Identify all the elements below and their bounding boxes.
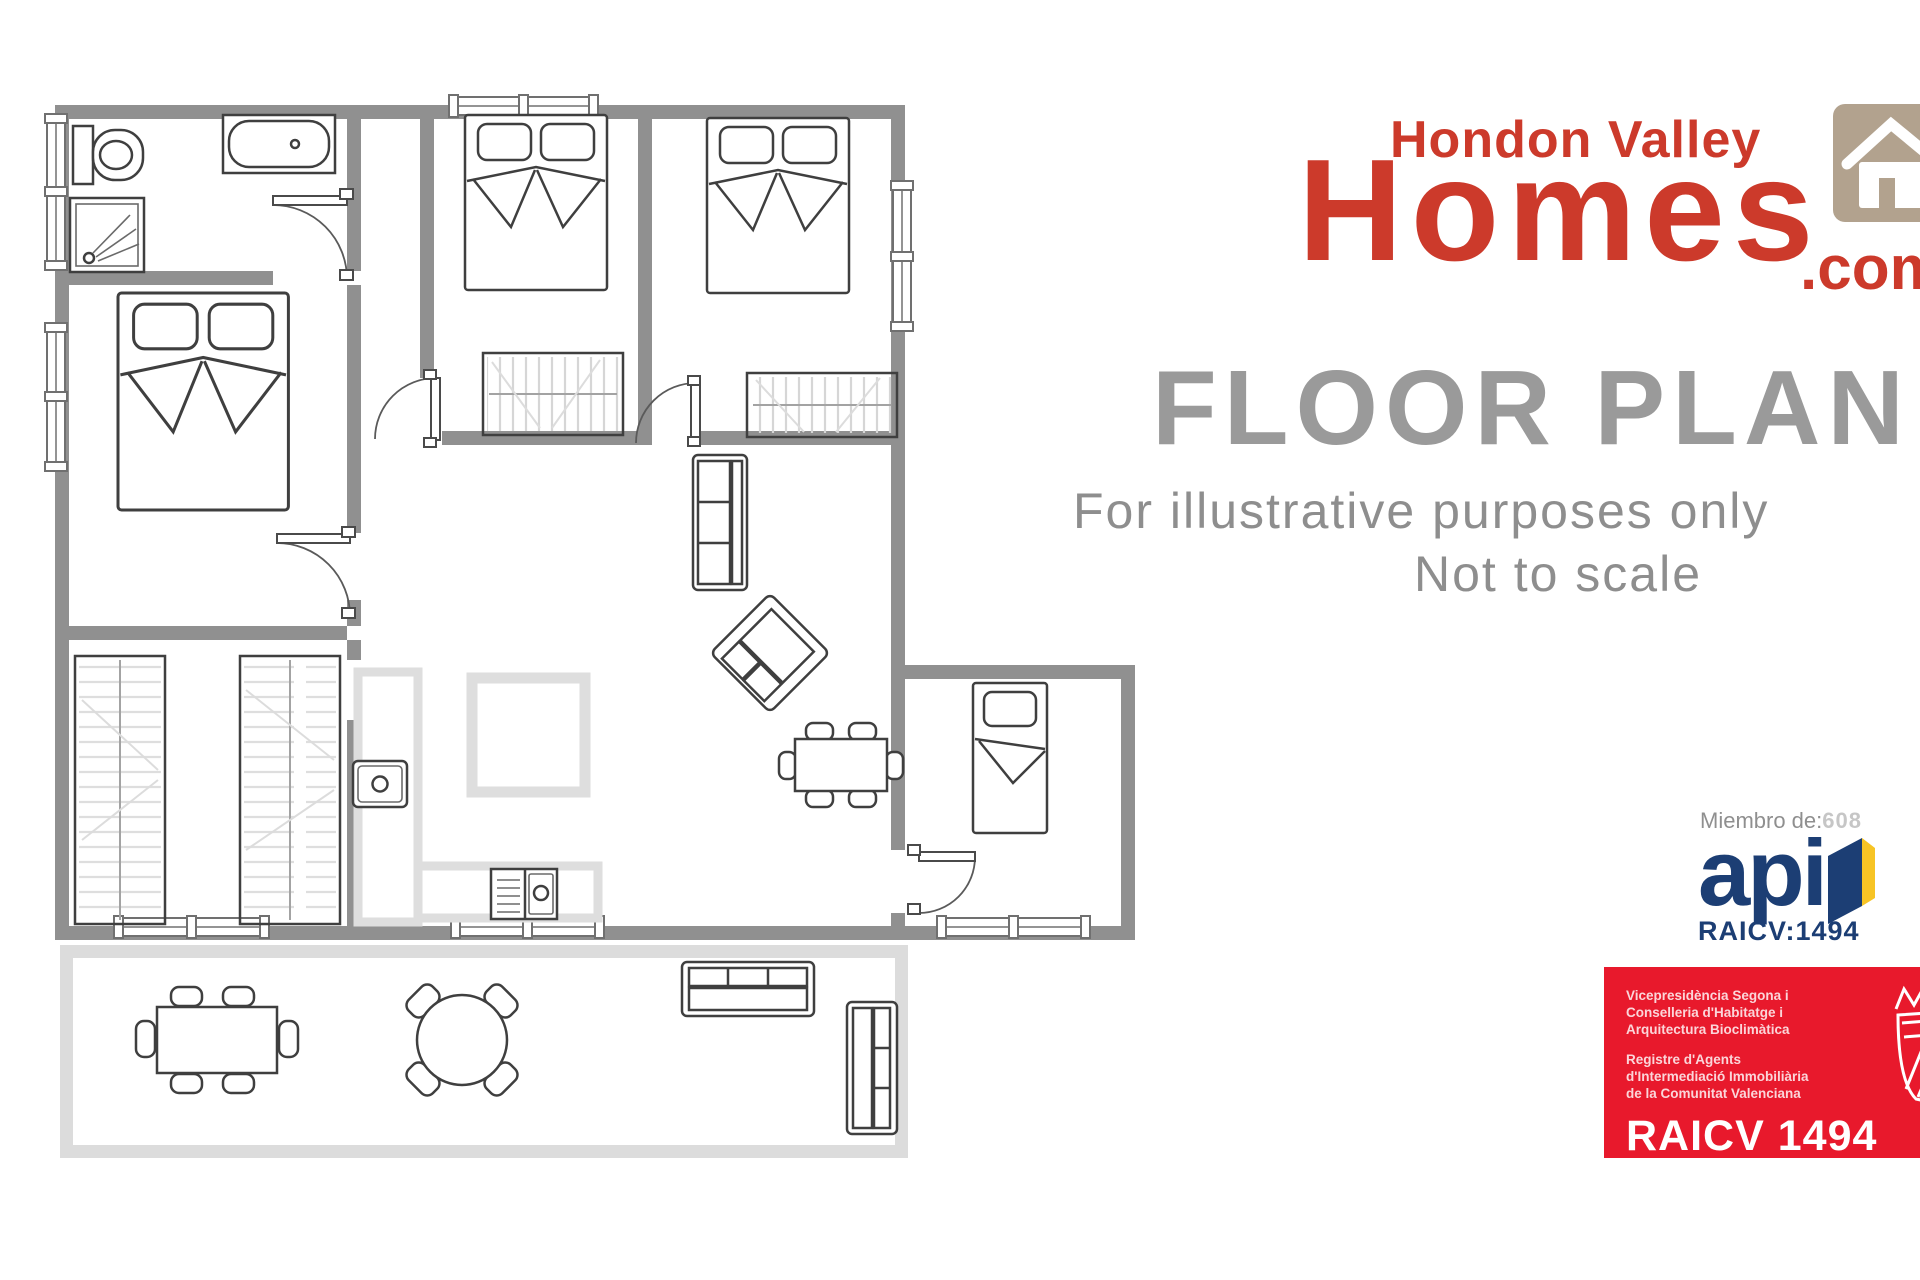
wardrobe-icon <box>240 656 340 924</box>
raicv-registry-badge: Vicepresidència Segona i Conselleria d'H… <box>1604 967 1920 1158</box>
double-bed-icon <box>707 118 849 293</box>
badge-text-line: Vicepresidència Segona i <box>1626 987 1920 1004</box>
floor-plan-flyer: { "branding": { "logo_line1": "Hondon Va… <box>0 0 1920 1280</box>
double-bed-icon <box>465 115 607 290</box>
sofa-icon <box>693 455 747 590</box>
kitchen-island <box>472 678 585 792</box>
sofa-icon <box>682 962 814 1016</box>
api-logo: api <box>1698 826 1825 920</box>
miembro-number: 608 <box>1822 808 1862 833</box>
badge-text-line: de la Comunitat Valenciana <box>1626 1085 1920 1102</box>
badge-text-line: Conselleria d'Habitatge i <box>1626 1004 1920 1021</box>
cooktop-icon <box>491 869 557 919</box>
badge-text-line: d'Intermediació Immobiliària <box>1626 1068 1920 1085</box>
badge-text-line: Registre d'Agents <box>1626 1051 1920 1068</box>
kitchen-sink-icon <box>353 761 407 807</box>
tagline-illustrative: For illustrative purposes only <box>1073 482 1769 540</box>
generalitat-coat-of-arms-icon <box>1888 981 1920 1136</box>
single-bed-icon <box>973 683 1047 833</box>
terrace-table-icon <box>136 987 298 1093</box>
shower-icon <box>70 198 144 272</box>
floor-plan-title: FLOOR PLAN <box>1152 348 1911 469</box>
house-icon <box>1833 104 1920 222</box>
logo-text-domain-suffix: .com <box>1800 233 1920 304</box>
dining-table-icon <box>779 723 903 807</box>
bathtub-icon <box>223 115 335 173</box>
toilet-icon <box>73 126 143 184</box>
round-table-icon <box>403 981 521 1099</box>
armchair-icon <box>711 594 830 713</box>
raicv-number-line: RAICV:1494 <box>1698 916 1860 947</box>
wardrobe-icon <box>75 656 165 924</box>
tagline-not-to-scale: Not to scale <box>1414 545 1702 603</box>
sofa-icon <box>847 1002 897 1134</box>
double-bed-icon <box>118 293 288 510</box>
wardrobe-icon <box>747 373 897 437</box>
badge-text-line: Arquitectura Bioclimàtica <box>1626 1021 1920 1038</box>
badge-raicv-number: RAICV 1494 <box>1626 1112 1920 1161</box>
wardrobe-icon <box>483 353 623 435</box>
logo-text-homes: Homes <box>1298 138 1822 283</box>
